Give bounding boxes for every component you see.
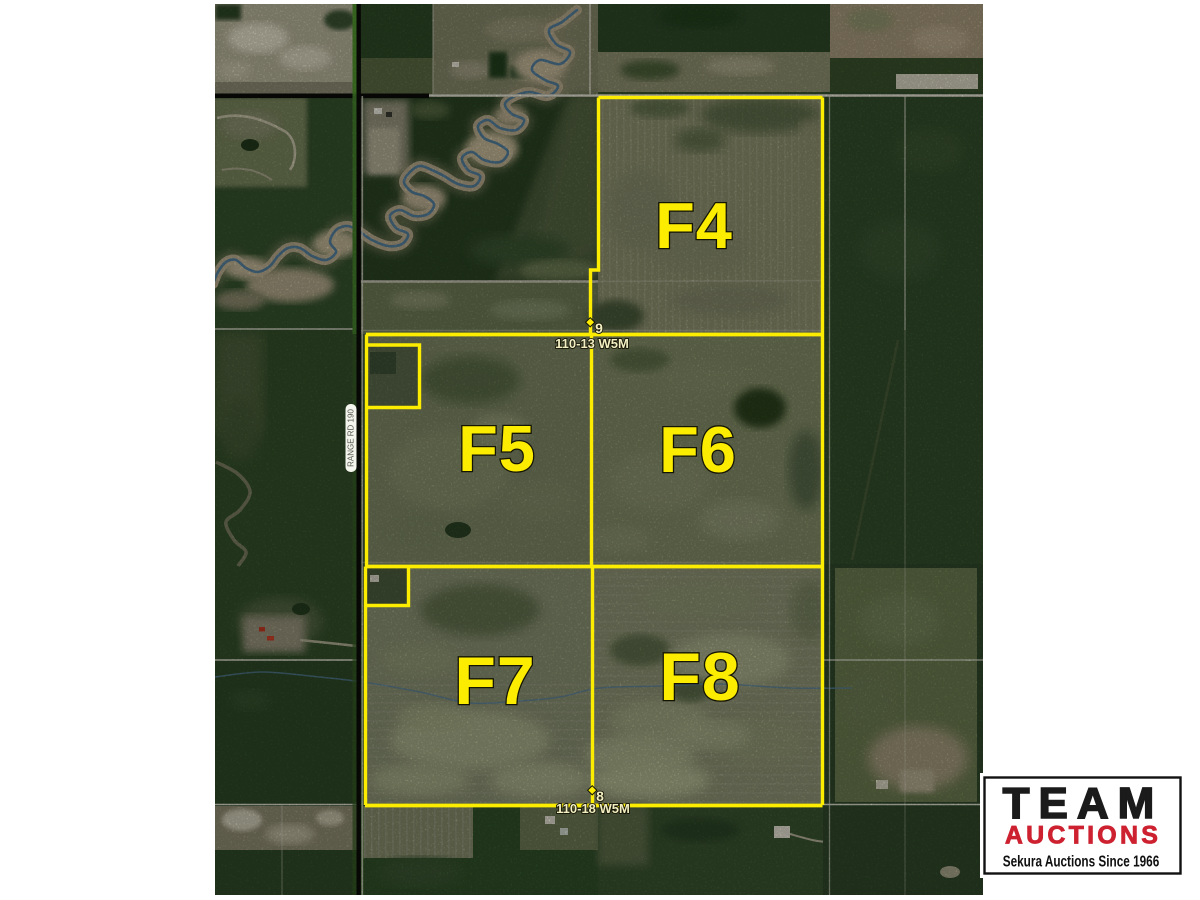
svg-text:9: 9 bbox=[595, 320, 603, 336]
svg-text:110-18 W5M: 110-18 W5M bbox=[556, 801, 630, 816]
svg-text:F8: F8 bbox=[659, 639, 740, 715]
svg-text:F5: F5 bbox=[458, 412, 536, 485]
svg-text:RANGE RD 190: RANGE RD 190 bbox=[346, 409, 355, 467]
svg-text:AUCTIONS: AUCTIONS bbox=[1005, 822, 1161, 850]
svg-text:F7: F7 bbox=[454, 643, 535, 719]
svg-text:F4: F4 bbox=[655, 189, 733, 262]
svg-text:Sekura Auctions Since 1966: Sekura Auctions Since 1966 bbox=[1003, 853, 1160, 870]
svg-text:F6: F6 bbox=[659, 413, 737, 486]
svg-text:110-13 W5M: 110-13 W5M bbox=[555, 336, 629, 351]
